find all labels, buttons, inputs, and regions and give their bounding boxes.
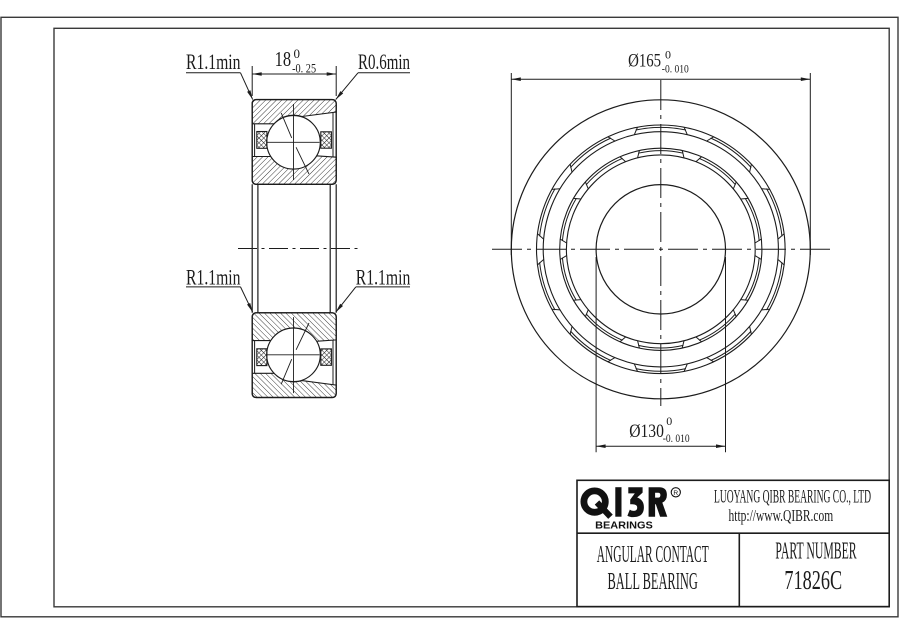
svg-text:PART NUMBER: PART NUMBER — [775, 538, 856, 564]
svg-text:http://www.QIBR.com: http://www.QIBR.com — [729, 506, 834, 525]
svg-text:71826C: 71826C — [784, 565, 842, 595]
svg-text:-0. 010: -0. 010 — [662, 61, 689, 75]
svg-text:0: 0 — [666, 414, 672, 428]
svg-text:0: 0 — [294, 46, 301, 61]
svg-text:ANGULAR CONTACT: ANGULAR CONTACT — [597, 542, 709, 568]
svg-text:R1.1min: R1.1min — [186, 49, 241, 74]
svg-text:BALL BEARING: BALL BEARING — [608, 569, 698, 595]
svg-text:R: R — [673, 490, 678, 497]
svg-text:R1.1min: R1.1min — [186, 264, 241, 289]
svg-text:-0. 010: -0. 010 — [663, 431, 690, 445]
svg-text:0: 0 — [665, 48, 671, 62]
svg-text:R1.1min: R1.1min — [356, 264, 411, 289]
svg-text:Ø130: Ø130 — [629, 421, 664, 442]
svg-text:Ø165: Ø165 — [628, 51, 661, 72]
svg-text:-0. 25: -0. 25 — [292, 60, 316, 75]
svg-text:R0.6min: R0.6min — [358, 49, 410, 74]
svg-text:LUOYANG QIBR BEARING CO., LTD: LUOYANG QIBR BEARING CO., LTD — [714, 487, 871, 508]
svg-text:BEARINGS: BEARINGS — [595, 521, 653, 532]
svg-text:18: 18 — [275, 47, 292, 71]
